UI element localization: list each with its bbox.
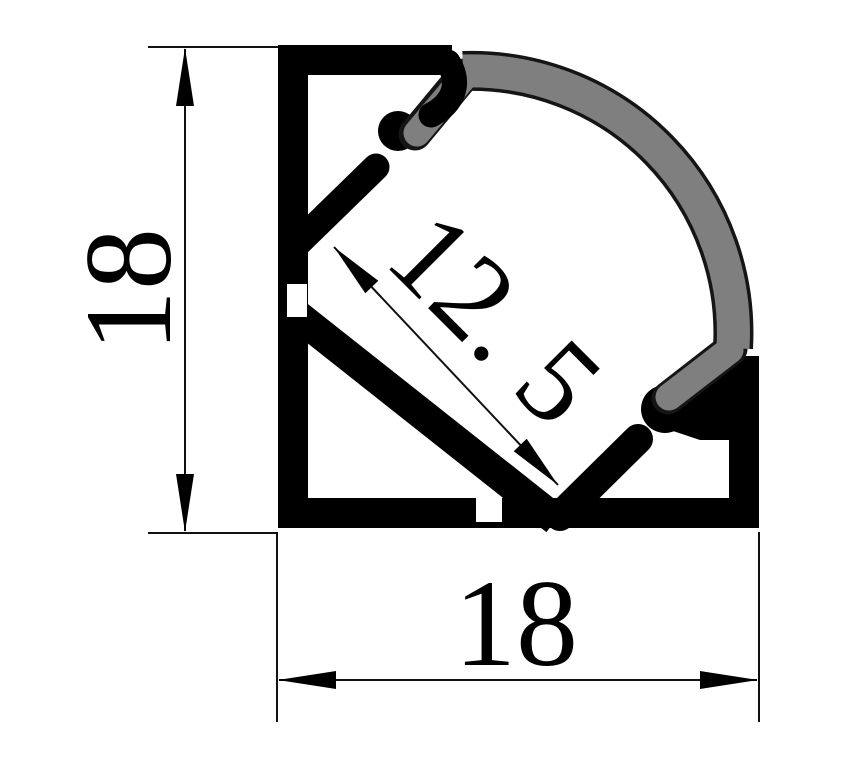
bottom-wall-slot-notch: [476, 498, 502, 522]
arrowhead-up: [176, 48, 194, 106]
dimension-height: 18: [60, 47, 278, 533]
technical-drawing-page: 18 18 12. 5: [0, 0, 867, 760]
arrowhead-down: [176, 474, 194, 532]
left-wall-slot-notch: [287, 284, 307, 317]
dimension-label-height: 18: [60, 228, 197, 352]
dimension-width: 18: [277, 532, 759, 722]
profile-drawing: 18 18 12. 5: [0, 0, 867, 760]
dimension-label-width: 18: [454, 555, 578, 692]
dimension-channel-width: 12. 5: [334, 186, 627, 485]
arrowhead-right: [700, 671, 758, 689]
arrowhead-left: [278, 671, 336, 689]
